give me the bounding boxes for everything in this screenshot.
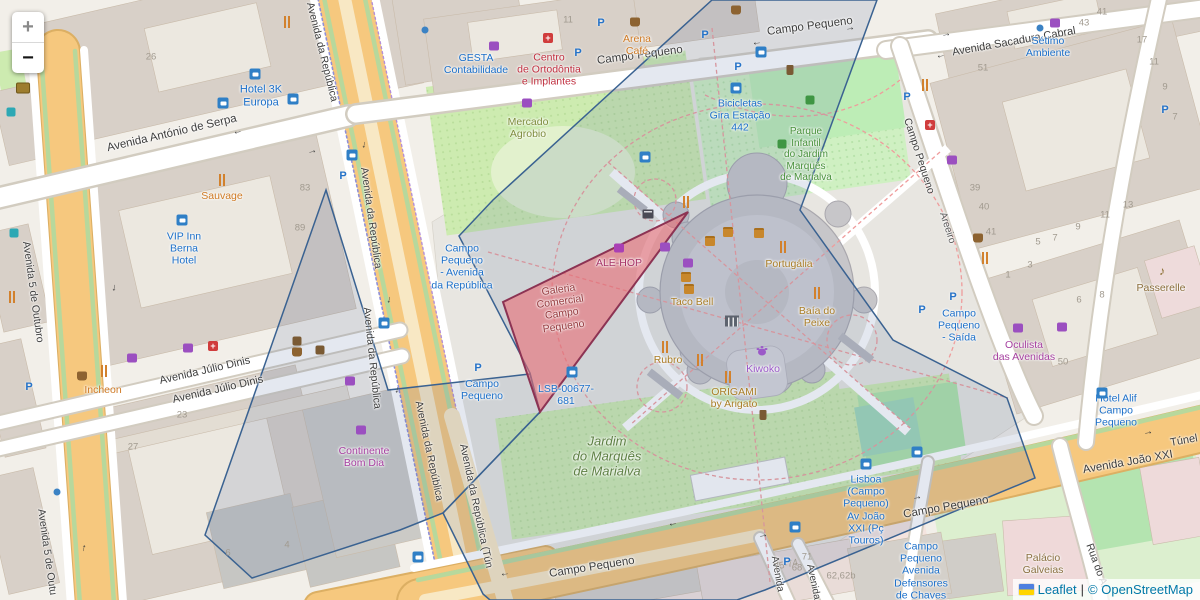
attribution-separator: | (1081, 582, 1084, 597)
zoom-control: + − (12, 12, 44, 73)
zoom-out-button[interactable]: − (12, 43, 44, 73)
map-canvas[interactable]: Avenida António de SerpaCampo PequenoCam… (0, 0, 1200, 600)
basemap-svg (0, 0, 1200, 600)
leaflet-link[interactable]: Leaflet (1038, 582, 1077, 597)
attribution-bar: Leaflet | © OpenStreetMap (1013, 579, 1200, 600)
openstreetmap-link[interactable]: © OpenStreetMap (1088, 582, 1193, 597)
zoom-in-button[interactable]: + (12, 12, 44, 43)
ukraine-flag-icon (1019, 584, 1034, 595)
